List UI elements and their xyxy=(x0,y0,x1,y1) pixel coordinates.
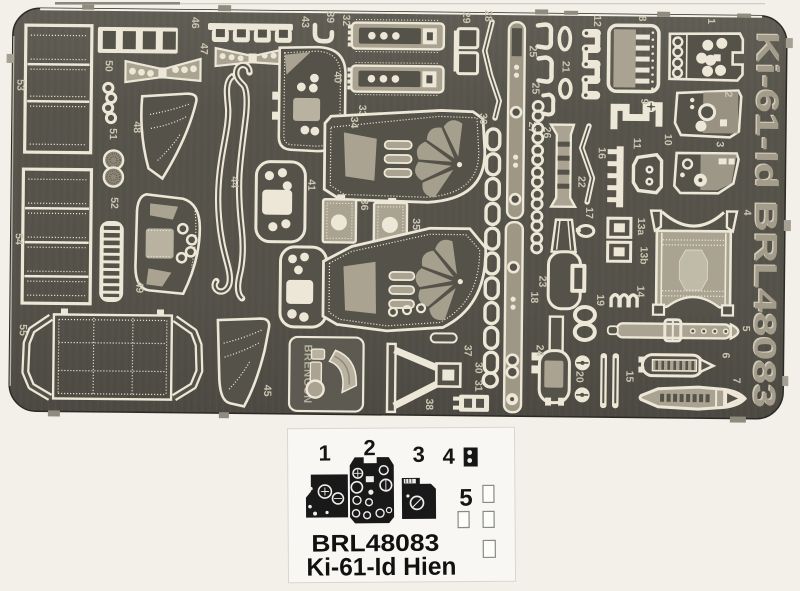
svg-text:2: 2 xyxy=(363,435,375,460)
svg-text:2: 2 xyxy=(722,91,734,97)
svg-text:52: 52 xyxy=(108,197,120,209)
svg-text:36: 36 xyxy=(358,199,370,211)
svg-text:24: 24 xyxy=(534,345,546,357)
svg-text:38: 38 xyxy=(423,398,435,410)
svg-text:3: 3 xyxy=(714,141,726,147)
svg-text:3: 3 xyxy=(412,442,424,467)
svg-text:34: 34 xyxy=(348,117,360,129)
svg-text:29: 29 xyxy=(460,12,472,24)
svg-text:23: 23 xyxy=(536,276,548,288)
svg-text:54: 54 xyxy=(13,233,25,245)
svg-text:37: 37 xyxy=(462,345,474,357)
svg-text:15: 15 xyxy=(623,371,635,383)
svg-text:20: 20 xyxy=(573,371,585,383)
svg-text:30: 30 xyxy=(477,113,489,125)
svg-text:13b: 13b xyxy=(637,246,649,264)
svg-text:7: 7 xyxy=(730,378,742,384)
svg-text:47: 47 xyxy=(198,43,210,55)
svg-text:51: 51 xyxy=(107,128,119,140)
svg-text:31: 31 xyxy=(472,380,484,392)
svg-text:5: 5 xyxy=(459,484,473,511)
svg-text:46: 46 xyxy=(189,17,201,29)
svg-text:18: 18 xyxy=(528,292,540,304)
svg-text:17: 17 xyxy=(583,207,595,219)
svg-text:16: 16 xyxy=(596,147,608,159)
svg-text:1: 1 xyxy=(318,440,330,465)
svg-text:41: 41 xyxy=(305,179,317,191)
svg-text:32: 32 xyxy=(340,15,352,27)
svg-text:40: 40 xyxy=(331,71,343,83)
svg-text:Ki-61-Id BRL48083: Ki-61-Id BRL48083 xyxy=(747,32,786,408)
svg-text:6: 6 xyxy=(720,352,732,358)
svg-text:35: 35 xyxy=(410,218,422,230)
svg-text:30: 30 xyxy=(472,362,484,374)
svg-text:53: 53 xyxy=(14,79,26,91)
svg-text:11: 11 xyxy=(631,138,643,149)
svg-text:43: 43 xyxy=(299,16,311,28)
svg-text:4: 4 xyxy=(442,444,455,469)
svg-text:25: 25 xyxy=(527,45,539,57)
svg-text:10: 10 xyxy=(662,134,674,146)
svg-text:13a: 13a xyxy=(635,218,647,236)
svg-text:28: 28 xyxy=(482,10,494,22)
svg-text:44: 44 xyxy=(228,176,240,188)
svg-text:8: 8 xyxy=(636,16,648,22)
svg-text:45: 45 xyxy=(261,385,273,397)
svg-text:1: 1 xyxy=(705,18,717,24)
svg-text:19: 19 xyxy=(594,294,606,306)
svg-text:14: 14 xyxy=(634,286,646,298)
svg-text:Ki-61-Id Hien: Ki-61-Id Hien xyxy=(306,553,456,582)
svg-text:48: 48 xyxy=(131,121,143,133)
svg-text:12: 12 xyxy=(591,15,603,27)
svg-text:49: 49 xyxy=(133,281,145,293)
svg-text:55: 55 xyxy=(17,324,29,336)
svg-text:22: 22 xyxy=(575,176,587,188)
svg-text:39: 39 xyxy=(324,11,336,23)
svg-text:21: 21 xyxy=(559,61,571,73)
svg-text:25: 25 xyxy=(529,83,541,95)
svg-text:50: 50 xyxy=(102,60,114,72)
svg-text:9: 9 xyxy=(638,99,650,105)
